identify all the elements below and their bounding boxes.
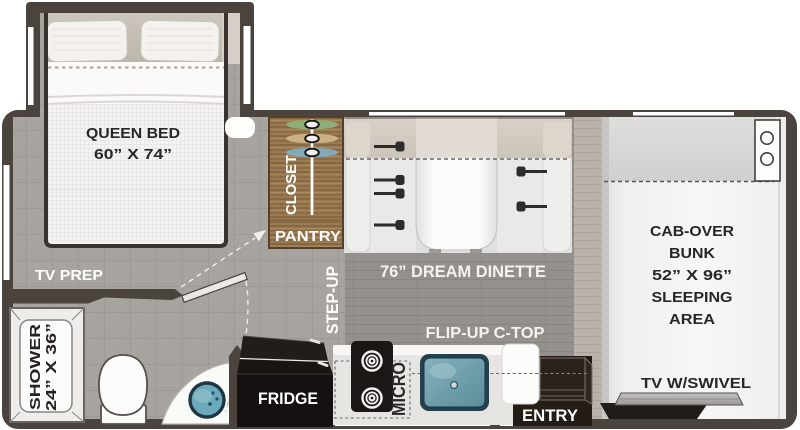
svg-text:SLEEPING: SLEEPING <box>652 289 733 306</box>
svg-text:TV W/SWIVEL: TV W/SWIVEL <box>641 375 751 392</box>
svg-text:BUNK: BUNK <box>669 245 715 262</box>
svg-text:TV PREP: TV PREP <box>35 267 103 284</box>
svg-text:STEP-UP: STEP-UP <box>323 266 342 334</box>
svg-text:CLOSET: CLOSET <box>283 155 300 215</box>
svg-text:ENTRY: ENTRY <box>522 406 579 425</box>
svg-text:60” X 74”: 60” X 74” <box>94 146 172 163</box>
svg-text:CAB-OVER: CAB-OVER <box>650 223 734 240</box>
svg-text:FRIDGE: FRIDGE <box>258 389 318 408</box>
svg-text:24” X 36”: 24” X 36” <box>43 323 60 411</box>
svg-text:QUEEN BED: QUEEN BED <box>86 125 180 142</box>
svg-text:PANTRY: PANTRY <box>275 228 341 245</box>
svg-text:76” DREAM DINETTE: 76” DREAM DINETTE <box>380 262 546 281</box>
svg-text:FLIP-UP C-TOP: FLIP-UP C-TOP <box>426 325 545 342</box>
svg-text:AREA: AREA <box>669 311 715 328</box>
svg-text:MICRO: MICRO <box>389 362 409 416</box>
svg-text:SHOWER: SHOWER <box>27 324 44 410</box>
svg-text:52” X 96”: 52” X 96” <box>652 267 732 284</box>
